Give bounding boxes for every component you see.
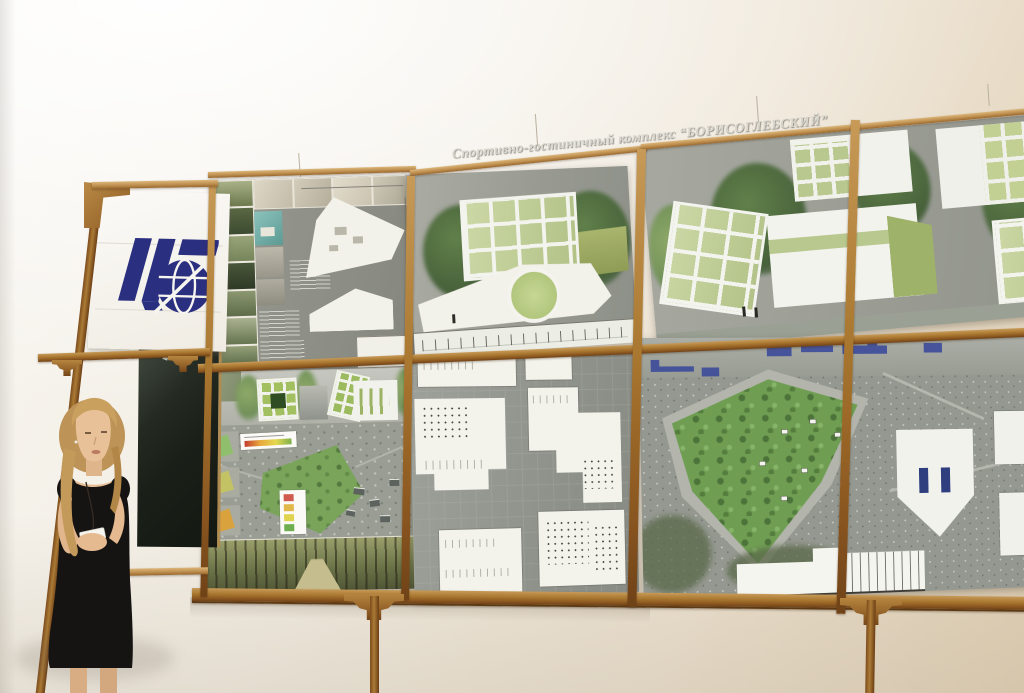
grid-building-rendering [935,118,1024,209]
plan-detail [446,568,509,578]
partial-floor-plan [994,410,1024,464]
wood-post-right [865,600,876,693]
dark-forest-zone [638,514,712,594]
scale-figure [754,307,758,317]
swatch-legend [279,490,306,535]
leg [100,668,117,693]
plan-detail [533,395,570,403]
gray-slab-elevation [299,385,328,420]
cottage-roof [781,496,787,500]
furniture-dots [583,459,614,489]
cottage-roof [760,461,766,465]
road-line [883,372,985,420]
board-bottom-right [638,337,1024,602]
furniture-dots [594,525,618,575]
forest-panorama-photo [205,536,419,593]
cottage-roof [835,433,841,437]
floor-plan [538,510,626,587]
leg [70,668,87,693]
tilted-grid-building-rendering [659,201,769,317]
cottage-roof [782,430,788,434]
building-footprint [380,516,390,522]
forest-path [293,558,342,592]
cottage-roof [810,419,816,423]
board-bottom-left [201,368,419,593]
green-grid-cube-elevation [256,377,298,421]
site-analysis-aerial [202,422,417,540]
interior-photo [293,178,331,207]
building-section-drawing [308,287,393,332]
building-footprint [369,500,380,507]
board-bottom-center [409,354,639,600]
striped-wall-elevation [353,380,398,421]
interior-photo-small [256,279,285,306]
elevation-strip [201,368,415,426]
plan-detail [445,539,496,548]
photo-stage: Спортивно-гостиничный комплекс “БОРИСОГЛ… [0,0,1024,693]
blue-building-sketch [702,367,720,376]
hands [77,533,107,551]
interior-photo-aqua [254,211,283,246]
scale-figure [452,314,455,323]
board-top-right [640,111,1024,349]
partial-floor-plan [999,492,1024,556]
lips [92,450,101,454]
building-floor-plan [896,429,975,538]
interior-photo [254,179,292,208]
interior-photo-small [255,247,284,278]
building-footprint [389,480,399,486]
presenter-woman [20,390,165,693]
column-grid [422,406,472,441]
wall-corner-shadow [0,0,16,693]
furniture-dots [546,520,589,564]
annotation-text-block [259,310,300,337]
grid-building-rendering [992,213,1024,306]
building-footprint [353,488,365,495]
building-footprint [346,510,356,517]
board-top-left [211,175,417,373]
wood-post-center [370,596,379,693]
gradient-legend [240,431,297,450]
floor-plan [439,528,523,596]
institute-logo-icon [98,216,219,331]
board-top-center [405,166,637,358]
cottage-roof [802,468,808,472]
earring [75,441,78,444]
plan-detail [426,460,485,470]
blue-building-sketch [924,343,942,353]
